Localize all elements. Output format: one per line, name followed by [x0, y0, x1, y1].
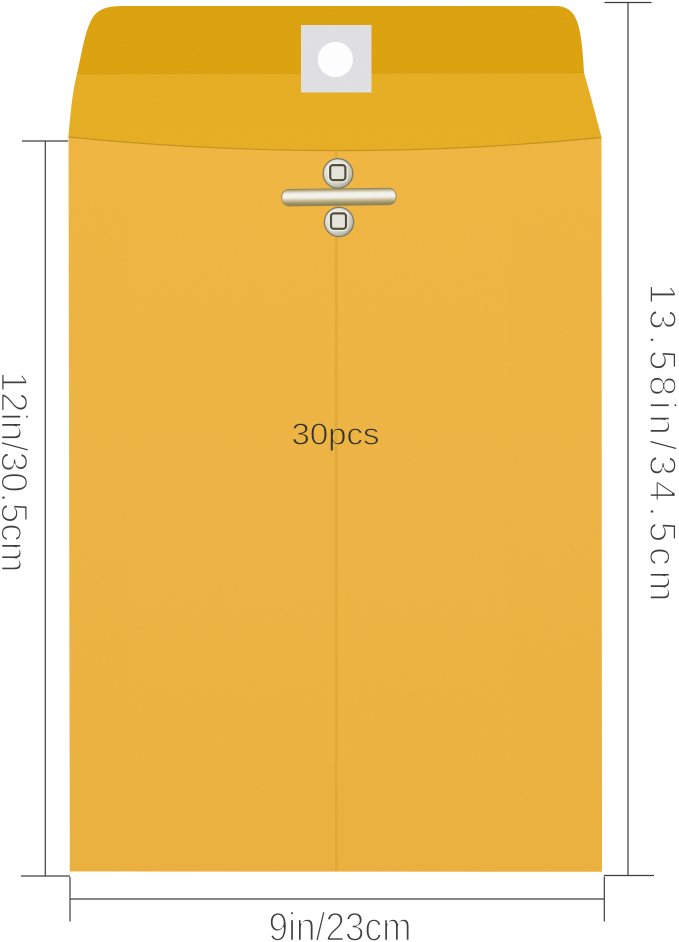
svg-text:30pcs: 30pcs	[292, 417, 380, 451]
svg-text:13.58in/34.5cm: 13.58in/34.5cm	[642, 284, 679, 602]
svg-text:9in/23cm: 9in/23cm	[269, 905, 412, 942]
svg-text:12in/30.5cm: 12in/30.5cm	[0, 372, 35, 573]
